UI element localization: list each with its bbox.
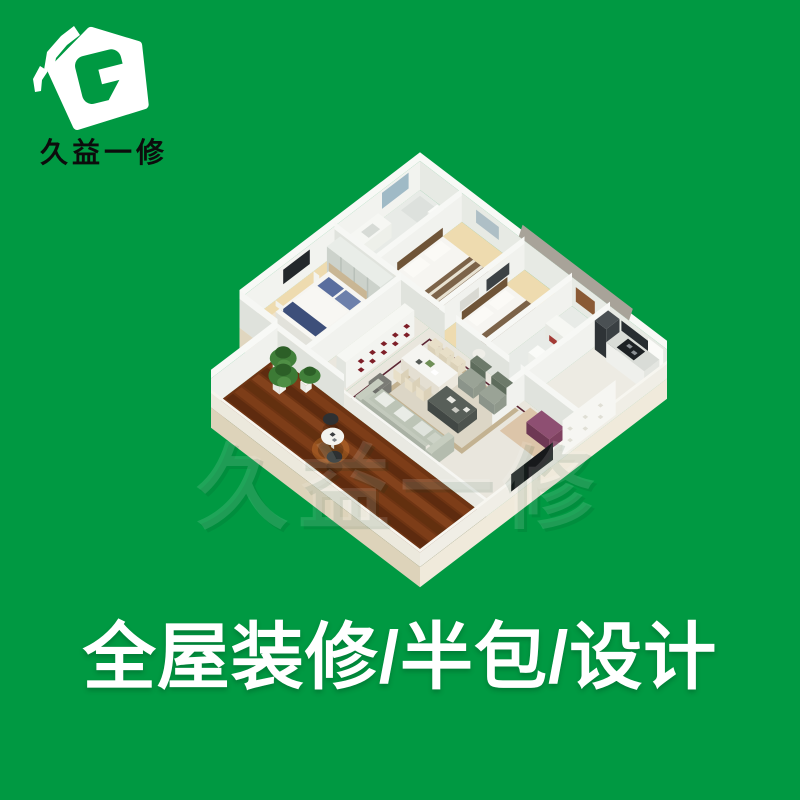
poster: { "logo": { "brand_name": "久益一修" }, "wat… — [0, 0, 800, 800]
watermark: 久益一修 久益一修 — [196, 438, 607, 543]
svg-text:久益一修: 久益一修 — [196, 438, 604, 540]
tagline: 全屋装修/半包/设计 — [0, 608, 800, 718]
